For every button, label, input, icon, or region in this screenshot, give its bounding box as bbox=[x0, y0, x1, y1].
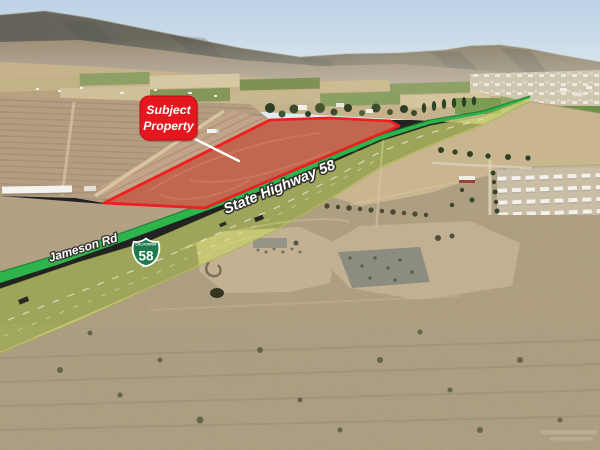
white-truck bbox=[207, 129, 219, 133]
callout-line2: Property bbox=[143, 119, 195, 133]
scene: Subject Property CALIFORNIA 58 State Hig… bbox=[0, 0, 600, 450]
aerial-property-photo: Subject Property CALIFORNIA 58 State Hig… bbox=[0, 0, 600, 450]
callout-line1: Subject bbox=[146, 103, 191, 117]
shield-route-number: 58 bbox=[138, 249, 154, 264]
subject-property-callout: Subject Property bbox=[140, 96, 199, 142]
red-roof-building bbox=[459, 176, 475, 183]
cleared-pad-east bbox=[328, 221, 520, 300]
shield-state-label: CALIFORNIA bbox=[135, 243, 157, 247]
dark-bush bbox=[210, 288, 224, 298]
